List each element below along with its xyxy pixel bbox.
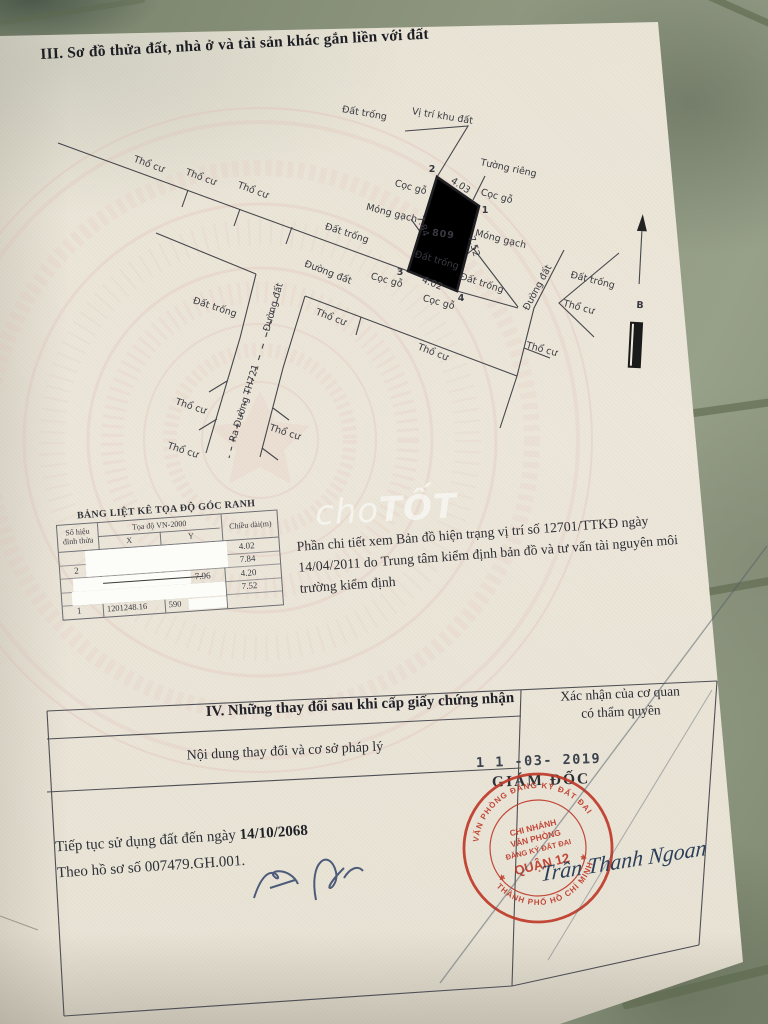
north-bar-symbol — [628, 322, 643, 369]
coordinate-table: BẢNG LIỆT KÊ TỌA ĐỘ GÓC RANH Số hiệu đỉn… — [55, 497, 284, 621]
label-dirt-road: Đường đất — [261, 282, 285, 333]
label-residential-land: Thổ cư — [183, 167, 219, 189]
row-y: 590 — [168, 598, 181, 609]
label-wood-stake: Cọc gỗ — [480, 187, 514, 206]
section4-title: IV. Những thay đổi sau khi cấp giấy chứn… — [150, 687, 570, 723]
label-brick-foundation: Móng gạch — [365, 202, 418, 225]
col-header-length: Chiều dài(m) — [221, 519, 279, 532]
section4-left-header: Nội dung thay đổi và cơ sở pháp lý — [130, 737, 440, 767]
label-residential-land: Thổ cư — [131, 154, 167, 176]
watermark-cho: cho — [314, 490, 380, 533]
boundary-line — [457, 291, 518, 308]
cadastral-sketch: 809 2 1 3 4 4.03 7.52 4.02 7.84 Đất trốn… — [38, 86, 688, 491]
col-header-point: Số hiệu đỉnh thửa — [57, 527, 98, 547]
table-right-border — [699, 681, 717, 945]
coordinate-table-grid: Số hiệu đỉnh thửa Tọa độ VN-2000 X Y Chi… — [56, 509, 284, 620]
label-dirt-road: Đường đất — [521, 263, 554, 312]
label-wood-stake: Cọc gỗ — [394, 178, 428, 197]
north-label: B — [636, 300, 644, 311]
leader-site-location — [405, 126, 468, 177]
row-id: 2 — [74, 566, 79, 576]
label-vacant-land: Đất trống — [458, 271, 505, 295]
area-labels: Vị trí khu đất Tường riêng Cọc gỗ Cọc gỗ… — [131, 104, 616, 461]
label-to-road-th721: Ra Đường TH721 — [228, 363, 262, 443]
north-arrow: B — [628, 214, 649, 368]
label-brick-foundation: Móng gạch — [474, 228, 527, 251]
label-residential-land: Thổ cư — [313, 306, 349, 328]
tile-grout-line — [0, 0, 145, 29]
table-bottom-border — [64, 945, 699, 1016]
redaction-box — [188, 596, 227, 610]
label-residential-land: Thổ cư — [173, 396, 209, 417]
row-length: 7.52 — [241, 580, 257, 591]
official-red-stamp: VĂN PHÒNG ĐĂNG KÝ ĐẤT ĐAI THÀNH PHỐ HỒ C… — [441, 751, 635, 945]
row-length: 7.84 — [239, 553, 255, 564]
table-row-line — [47, 716, 521, 739]
label-site-location: Vị trí khu đất — [411, 106, 474, 127]
row-id: 1 — [77, 605, 82, 615]
label-residential-land: Thổ cư — [267, 422, 303, 443]
handwritten-initials — [240, 838, 370, 913]
label-dirt-road: Đường đất — [303, 259, 354, 287]
north-arrow-head — [637, 214, 648, 232]
corner-1: 1 — [482, 205, 489, 216]
right-road-edge — [559, 253, 619, 337]
corner-3: 3 — [397, 267, 404, 278]
boundary-line — [156, 233, 256, 274]
label-residential-land: Thổ cư — [165, 440, 201, 461]
label-residential-land: Thổ cư — [561, 298, 597, 317]
label-private-wall: Tường riêng — [478, 157, 537, 180]
watermark-tot: TỐT — [378, 486, 458, 530]
stamp-star-left: ✱ — [498, 873, 507, 883]
boundary-ticks — [356, 317, 517, 428]
label-residential-land: Thổ cư — [524, 340, 560, 359]
row-length: 4.20 — [240, 567, 256, 578]
corner-4: 4 — [458, 293, 465, 304]
boundary-ticks — [182, 190, 292, 244]
boundary-line — [305, 296, 517, 376]
corner-2: 2 — [429, 164, 436, 175]
north-arrow-shaft — [639, 231, 642, 284]
row-length: 4.02 — [238, 540, 254, 551]
section4-right-header: Xác nhận của cơ quan có thẩm quyền — [532, 681, 708, 724]
certificate-document: III. Sơ đồ thửa đất, nhà ở và tài sản kh… — [0, 0, 768, 1024]
photo-land-certificate-page: III. Sơ đồ thửa đất, nhà ở và tài sản kh… — [0, 0, 768, 1024]
col-header-point-l2: đỉnh thửa — [58, 536, 99, 548]
right-road-edge — [517, 250, 564, 376]
tile-grout-line — [684, 394, 768, 419]
label-vacant-land: Đất trống — [341, 104, 388, 123]
label-vacant-land: Đất trống — [191, 295, 238, 319]
chotot-watermark: choTỐT — [314, 486, 458, 533]
boundary-line — [58, 143, 408, 271]
label-wood-stake: Cọc gỗ — [422, 293, 456, 312]
label-residential-land: Thổ cư — [235, 180, 271, 202]
